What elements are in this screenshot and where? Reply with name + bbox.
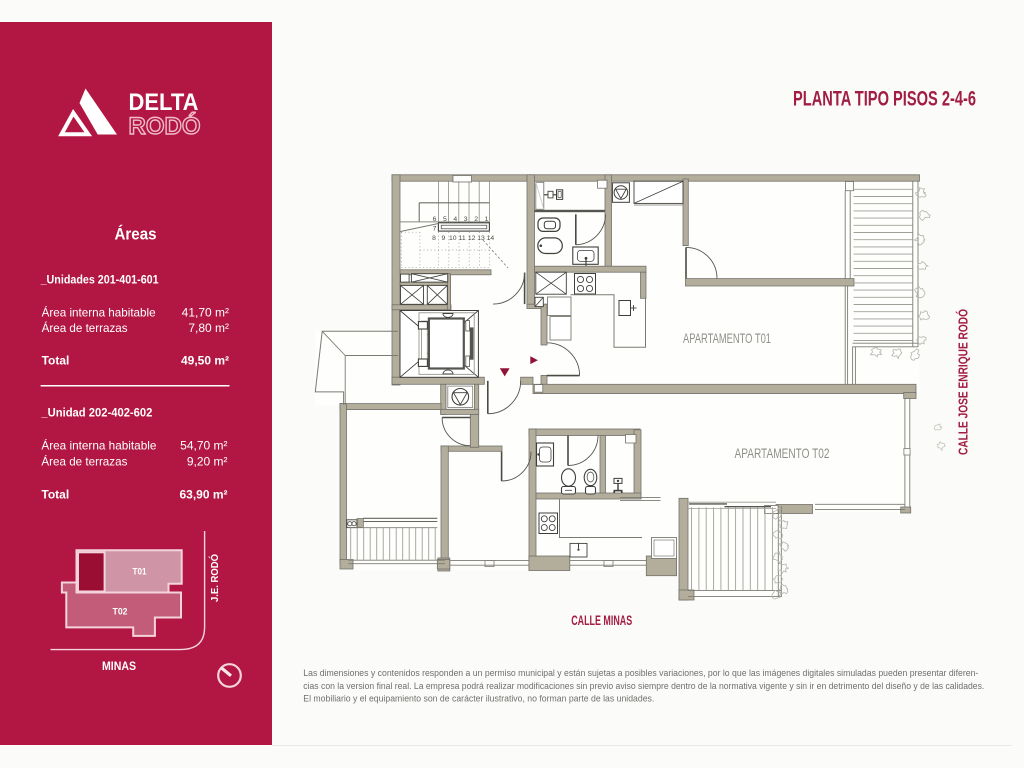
svg-text:DELTA: DELTA [129, 89, 199, 116]
svg-text:_Unidades 201-401-601: _Unidades 201-401-601 [40, 273, 159, 287]
svg-text:14: 14 [487, 235, 495, 242]
svg-text:cias con la version final real: cias con la version final real. La empre… [303, 681, 984, 691]
svg-text:T01: T01 [133, 567, 147, 577]
svg-text:El mobiliario y el equipamient: El mobiliario y el equipamiento son de c… [303, 694, 654, 704]
svg-text:4: 4 [453, 216, 457, 223]
svg-text:3: 3 [464, 216, 468, 223]
svg-text:CALLE MINAS: CALLE MINAS [571, 613, 632, 628]
svg-text:_Unidad 202-402-602: _Unidad 202-402-602 [40, 406, 152, 420]
svg-text:Área interna habitable: Área interna habitable [42, 305, 156, 320]
svg-text:MINAS: MINAS [102, 661, 136, 673]
svg-text:APARTAMENTO T01: APARTAMENTO T01 [683, 330, 771, 346]
svg-text:7,80 m²: 7,80 m² [188, 321, 229, 335]
svg-text:11: 11 [459, 235, 466, 242]
svg-text:J.E. RODÓ: J.E. RODÓ [208, 554, 221, 602]
svg-text:Total: Total [42, 354, 70, 368]
svg-text:10: 10 [449, 235, 457, 242]
svg-text:Área de terrazas: Área de terrazas [42, 320, 128, 335]
svg-text:41,70 m²: 41,70 m² [182, 306, 229, 320]
svg-text:5: 5 [443, 216, 447, 223]
svg-text:6: 6 [433, 216, 437, 223]
svg-text:2: 2 [474, 216, 478, 223]
svg-text:RODÓ: RODÓ [129, 112, 201, 140]
svg-text:13: 13 [477, 235, 485, 242]
svg-text:APARTAMENTO T02: APARTAMENTO T02 [735, 445, 830, 461]
svg-text:63,90 m²: 63,90 m² [179, 488, 227, 502]
svg-text:9,20 m²: 9,20 m² [187, 455, 228, 469]
svg-text:PLANTA TIPO PISOS 2-4-6: PLANTA TIPO PISOS 2-4-6 [793, 88, 976, 111]
svg-text:8: 8 [432, 235, 436, 242]
svg-text:7: 7 [433, 226, 437, 233]
svg-text:49,50 m²: 49,50 m² [181, 354, 229, 368]
svg-text:CALLE JOSE ENRIQUE RODÓ: CALLE JOSE ENRIQUE RODÓ [956, 309, 971, 455]
svg-text:Área interna habitable: Área interna habitable [41, 438, 156, 453]
svg-text:12: 12 [468, 235, 476, 242]
svg-text:T02: T02 [113, 607, 128, 617]
svg-text:1: 1 [485, 216, 489, 223]
svg-text:9: 9 [442, 235, 446, 242]
svg-text:54,70 m²: 54,70 m² [180, 439, 227, 453]
svg-text:Áreas: Áreas [115, 225, 157, 244]
svg-text:Total: Total [41, 488, 69, 502]
svg-text:Área de terrazas: Área de terrazas [41, 454, 127, 469]
svg-text:Las dimensiones y contenidos r: Las dimensiones y contenidos responden a… [303, 668, 978, 678]
